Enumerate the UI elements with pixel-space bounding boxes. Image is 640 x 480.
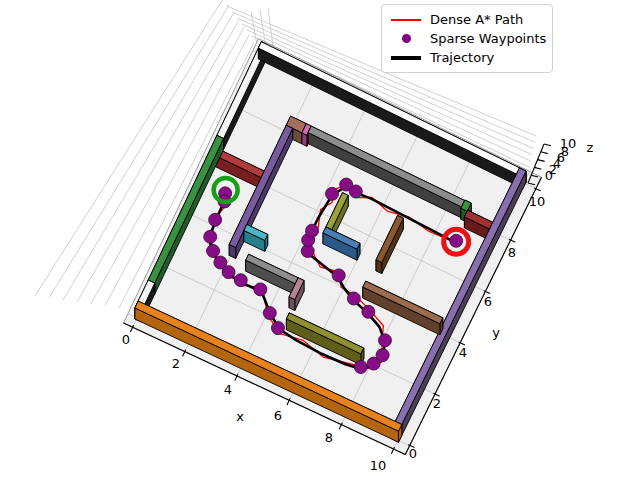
waypoint-dot xyxy=(209,213,222,226)
y-axis-label: y xyxy=(492,325,500,340)
waypoint-dot xyxy=(306,224,319,237)
y-tick-label: 6 xyxy=(484,294,492,309)
waypoint-dot xyxy=(204,230,217,243)
red-line-icon xyxy=(390,19,422,21)
waypoint-dot xyxy=(450,234,463,247)
purple-dot-icon xyxy=(390,34,422,43)
legend-row: Sparse Waypoints xyxy=(390,29,544,48)
y-tick-label: 4 xyxy=(459,345,467,360)
waypoint-dot xyxy=(222,266,235,279)
legend-row: Trajectory xyxy=(390,48,544,67)
x-tick-label: 0 xyxy=(122,332,130,347)
waypoint-dot xyxy=(378,334,391,347)
y-tick-label: 8 xyxy=(508,245,516,260)
x-tick-label: 8 xyxy=(325,430,333,445)
waypoint-dot xyxy=(332,269,345,282)
x-tick-label: 6 xyxy=(274,408,282,423)
z-axis-label: z xyxy=(587,140,594,155)
legend-label-dense-path: Dense A* Path xyxy=(430,12,523,27)
waypoint-dot xyxy=(376,349,389,362)
legend: Dense A* Path Sparse Waypoints Trajector… xyxy=(381,4,553,73)
x-tick-label: 4 xyxy=(224,382,232,397)
y-tick-label: 0 xyxy=(409,446,417,461)
waypoint-dot xyxy=(271,322,284,335)
waypoint-dot xyxy=(362,305,375,318)
waypoint-dot xyxy=(263,307,276,320)
x-tick-label: 2 xyxy=(172,356,180,371)
legend-label-trajectory: Trajectory xyxy=(430,50,494,65)
y-tick-label: 10 xyxy=(529,194,546,209)
waypoint-dot xyxy=(347,292,360,305)
figure-canvas: 024681002468100246810xyz Dense A* Path S… xyxy=(0,0,640,480)
waypoint-dot xyxy=(234,274,247,287)
z-tick-label: 10 xyxy=(560,136,577,151)
x-axis-label: x xyxy=(236,409,244,424)
waypoint-dot xyxy=(326,187,339,200)
legend-row: Dense A* Path xyxy=(390,10,544,29)
x-tick-label: 10 xyxy=(370,458,387,473)
waypoint-dot xyxy=(207,244,220,257)
y-tick-label: 2 xyxy=(433,396,441,411)
waypoint-dot xyxy=(349,185,362,198)
legend-label-waypoints: Sparse Waypoints xyxy=(430,31,546,46)
waypoint-dot xyxy=(354,361,367,374)
waypoint-dot xyxy=(254,283,267,296)
black-line-icon xyxy=(390,56,422,60)
